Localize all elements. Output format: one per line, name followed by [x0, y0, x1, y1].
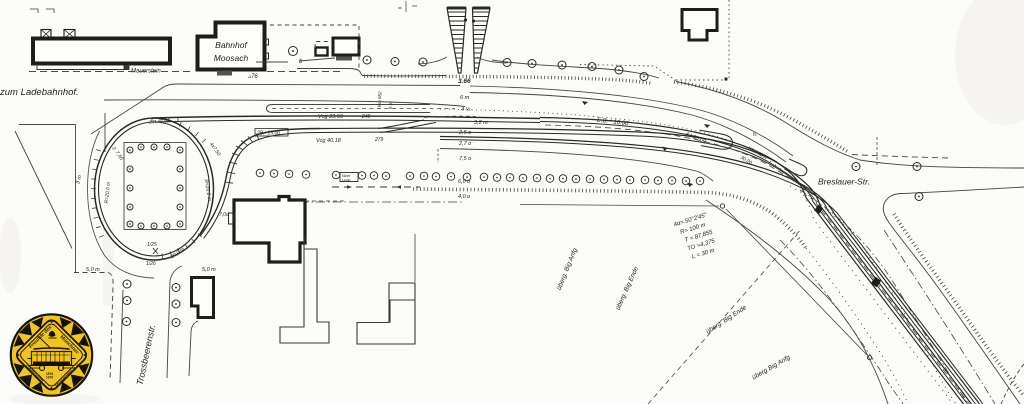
svg-text:2,7 o: 2,7 o	[458, 141, 471, 147]
svg-text:6 m: 6 m	[388, 101, 393, 109]
svg-text:5,0 m: 5,0 m	[202, 267, 216, 273]
svg-text:248: 248	[361, 114, 371, 120]
svg-text:Wart: Wart	[342, 174, 351, 178]
svg-text:3,2 m: 3,2 m	[474, 120, 488, 126]
svg-text:Vcg 40.18: Vcg 40.18	[316, 138, 342, 144]
svg-text:Breslauer-Str.: Breslauer-Str.	[818, 177, 870, 187]
svg-text:2,5 o: 2,5 o	[458, 130, 471, 136]
svg-text:7,0o: 7,0o	[219, 212, 229, 218]
svg-text:1/25: 1/25	[147, 242, 157, 248]
svg-text:zum Ladebahnhof.: zum Ladebahnhof.	[0, 87, 79, 98]
svg-text:7,5 o: 7,5 o	[459, 156, 471, 162]
svg-text:4 ⅓: 4 ⅓	[461, 107, 471, 113]
svg-text:Bahnhof: Bahnhof	[215, 40, 248, 50]
svg-text:5,0 m: 5,0 m	[86, 267, 100, 273]
svg-text:1/26: 1/26	[146, 261, 156, 267]
svg-text:Halle: Halle	[342, 179, 351, 183]
svg-text:Moosach: Moosach	[214, 53, 249, 63]
svg-text:4,0 o: 4,0 o	[458, 194, 470, 200]
svg-text:Km 982: Km 982	[377, 91, 383, 107]
svg-text:279: 279	[374, 137, 384, 143]
svg-text:▵76: ▵76	[248, 74, 258, 80]
svg-text:3.66: 3.66	[458, 78, 471, 85]
svg-text:2B.¹ 15.00: 2B.¹ 15.00	[256, 131, 280, 137]
svg-text:h.: h.	[753, 132, 757, 138]
svg-text:1976: 1976	[46, 376, 53, 380]
svg-text:Vcg 39.93: Vcg 39.93	[318, 114, 344, 120]
svg-text:6 m: 6 m	[460, 95, 470, 101]
